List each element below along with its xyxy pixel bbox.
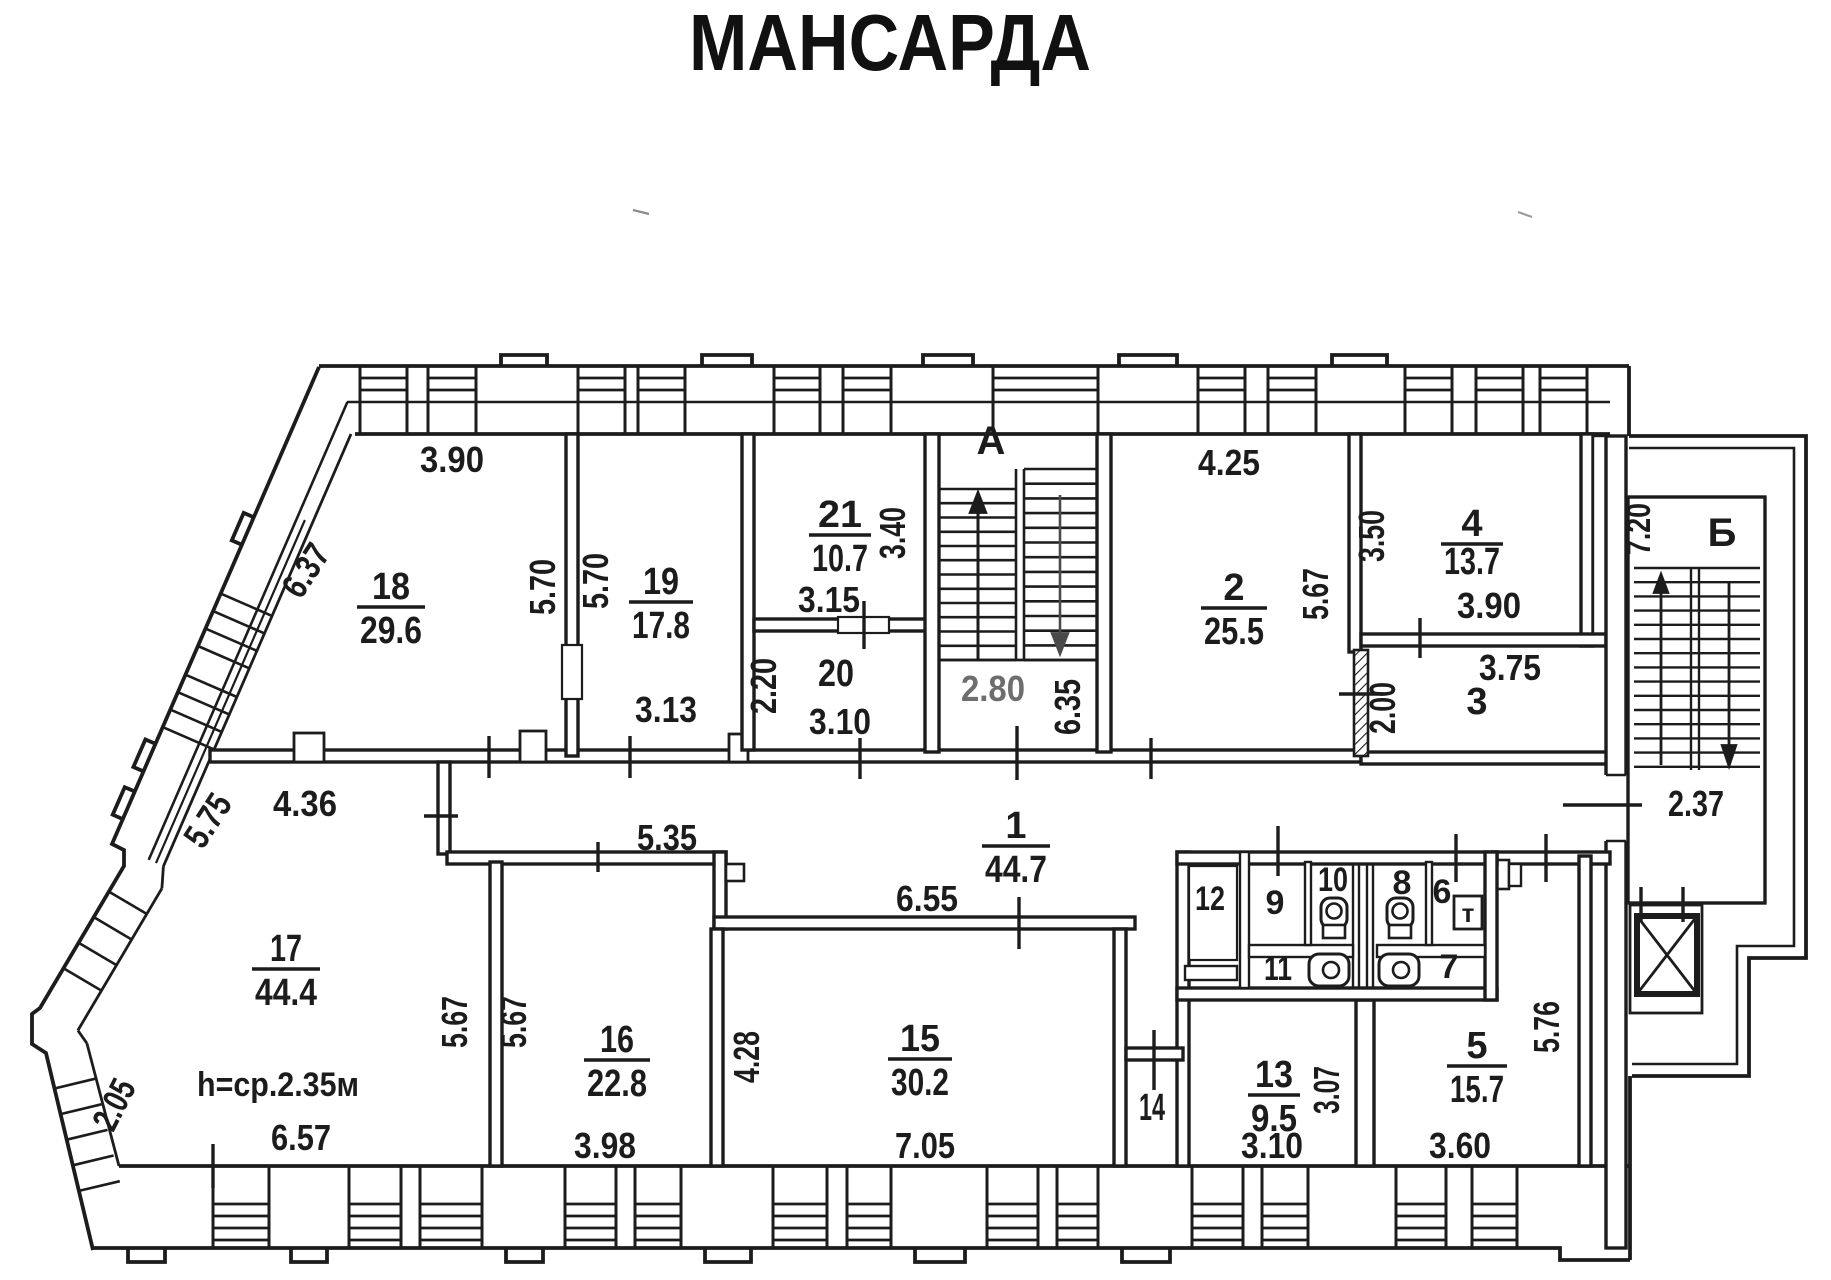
svg-text:2.80: 2.80 [961,668,1025,709]
svg-text:8: 8 [1393,864,1412,902]
svg-text:9: 9 [1266,884,1285,922]
svg-text:18: 18 [372,566,410,608]
svg-text:3.10: 3.10 [809,701,871,742]
svg-text:17: 17 [270,928,302,970]
svg-text:6: 6 [1433,873,1452,911]
svg-text:3.90: 3.90 [1457,585,1521,626]
svg-text:5.67: 5.67 [1295,568,1336,620]
svg-text:6.35: 6.35 [1047,679,1088,735]
svg-text:7.05: 7.05 [895,1125,955,1166]
svg-text:44.4: 44.4 [255,972,317,1014]
svg-text:МАНСАРДА: МАНСАРДА [689,0,1091,87]
svg-text:3.40: 3.40 [872,507,913,559]
svg-text:7: 7 [1440,948,1459,986]
svg-text:17.8: 17.8 [632,605,690,647]
svg-text:5.70: 5.70 [522,559,563,615]
svg-text:2: 2 [1223,567,1244,609]
svg-text:3.60: 3.60 [1429,1125,1491,1166]
svg-text:h=ср.2.35м: h=ср.2.35м [197,1066,359,1104]
svg-text:5.76: 5.76 [1526,1001,1567,1053]
svg-text:7.20: 7.20 [1620,503,1658,555]
svg-text:т: т [1462,898,1475,928]
svg-text:13: 13 [1255,1054,1293,1096]
svg-text:5.35: 5.35 [637,817,697,858]
svg-text:2.00: 2.00 [1362,682,1403,734]
svg-text:4: 4 [1461,503,1482,545]
svg-text:6.57: 6.57 [271,1117,331,1158]
svg-text:10.7: 10.7 [812,538,868,580]
svg-text:3.98: 3.98 [574,1125,636,1166]
svg-text:19: 19 [643,561,679,603]
svg-text:4.25: 4.25 [1198,442,1260,483]
svg-text:5.67: 5.67 [434,996,475,1048]
svg-text:1: 1 [1005,805,1026,847]
svg-text:21: 21 [818,494,862,536]
svg-text:15: 15 [900,1018,940,1060]
svg-text:3.15: 3.15 [798,579,860,620]
svg-text:29.6: 29.6 [360,610,422,652]
svg-text:А: А [977,419,1006,463]
svg-text:3.13: 3.13 [635,689,697,730]
svg-text:5.70: 5.70 [575,553,616,609]
svg-text:2.20: 2.20 [743,658,784,714]
svg-text:Б: Б [1708,511,1737,555]
svg-text:3.90: 3.90 [420,439,484,480]
svg-text:20: 20 [818,653,854,695]
svg-text:2.37: 2.37 [1668,783,1724,824]
svg-text:16: 16 [600,1019,634,1061]
svg-text:13.7: 13.7 [1444,541,1500,583]
svg-text:44.7: 44.7 [985,849,1047,891]
svg-text:6.55: 6.55 [896,878,958,919]
svg-text:5: 5 [1466,1025,1487,1067]
svg-text:25.5: 25.5 [1204,611,1264,653]
svg-text:10: 10 [1318,861,1348,899]
svg-text:3.07: 3.07 [1306,1066,1347,1114]
svg-text:3.75: 3.75 [1479,647,1541,688]
svg-text:30.2: 30.2 [891,1062,949,1104]
svg-text:3.50: 3.50 [1351,510,1392,562]
svg-text:3.10: 3.10 [1241,1125,1303,1166]
svg-text:5.67: 5.67 [493,996,534,1048]
svg-text:4.36: 4.36 [273,783,337,824]
svg-text:22.8: 22.8 [587,1063,647,1105]
svg-text:15.7: 15.7 [1450,1069,1504,1111]
svg-text:4.28: 4.28 [726,1031,767,1083]
svg-text:14: 14 [1139,1087,1165,1129]
svg-text:12: 12 [1195,880,1225,918]
svg-text:11: 11 [1264,950,1292,988]
